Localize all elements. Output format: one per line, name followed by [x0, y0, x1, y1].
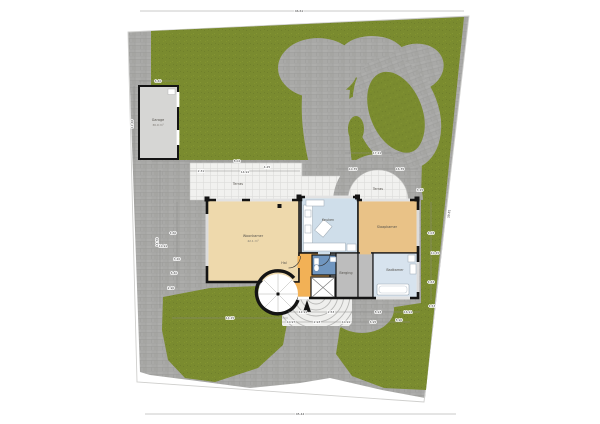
dimension-label: 8.93 — [375, 310, 382, 314]
room-label-badkamer: Badkamer — [386, 268, 404, 272]
dimension-label: 6.40 — [171, 271, 178, 275]
dimension-label: 8.90 — [396, 318, 403, 322]
dimension-label: 14.25 — [226, 316, 235, 320]
dimension-label: 2.31 — [198, 169, 205, 173]
dimension-label: 14.91 — [241, 170, 250, 174]
dimension-label: 8.02 — [234, 159, 241, 163]
floor-plan-svg: 46.6145.446.4011.4014.504.6010.913.206.4… — [0, 0, 600, 424]
room-label-keuken: Keuken — [322, 218, 334, 222]
room-label-woonkamer: Woonkamer — [243, 234, 264, 238]
garage-door-gap-bottom — [177, 130, 180, 145]
dimension-label: 10.91 — [159, 244, 168, 248]
dimension-label: 6.95 — [370, 320, 377, 324]
room-area-woonkamer: 42.1 m² — [247, 239, 258, 243]
dimension-label: 16.35 — [396, 167, 405, 171]
dimension-label: 39.81 — [447, 209, 452, 218]
dimension-label: 6.40 — [155, 79, 162, 83]
room-berging-b[interactable] — [358, 253, 373, 298]
room-label-slaapkamer: Slaapkamer — [377, 225, 398, 229]
dimension-label: 3.15 — [417, 188, 424, 192]
dimension-label: 16.91 — [404, 310, 413, 314]
dimension-label: 4.53 — [429, 304, 436, 308]
dimension-label: 4.63 — [428, 280, 435, 284]
room-label-terras-achter: Terras — [372, 187, 383, 191]
bathroom-sink — [410, 264, 416, 274]
dimension-label: 46.61 — [295, 9, 304, 13]
bathtub — [377, 284, 409, 295]
dimension-label: 4.03 — [428, 231, 435, 235]
room-label-garage: Garage — [152, 118, 164, 122]
bathroom-toilet — [408, 255, 415, 262]
room-berging-a[interactable] — [336, 253, 358, 298]
lawn-arch-hole — [348, 116, 364, 142]
dimension-label: 4.25 — [264, 165, 271, 169]
room-label-hal: Hal — [281, 261, 287, 265]
dimension-label: 17.21 — [373, 151, 382, 155]
dimension-label: 10.35 — [349, 167, 358, 171]
room-area-garage: 30.9 m² — [152, 123, 163, 127]
room-label-terras-voor: Terras — [232, 182, 243, 186]
spiral-staircase[interactable] — [256, 271, 298, 314]
site-plan-canvas: 46.6145.446.4011.4014.504.6010.913.206.4… — [0, 0, 600, 424]
dimension-label: 3.20 — [174, 257, 181, 261]
dimension-label: 2.93 — [314, 320, 321, 324]
dimension-label: 10.45 — [431, 251, 440, 255]
dimension-label: 4.60 — [170, 231, 177, 235]
garage-symbol-chip — [168, 89, 175, 95]
dimension-label: 11.40 — [130, 120, 134, 129]
dimension-label: 10.91 — [342, 320, 351, 324]
room-label-berging: Berging — [339, 271, 352, 275]
dimension-label: 10.97 — [287, 320, 296, 324]
dimension-label: 2.53 — [328, 310, 335, 314]
garage-door-gap-top — [177, 92, 180, 107]
dimension-label: 2.90 — [168, 286, 175, 290]
dimension-label: 45.44 — [296, 412, 305, 416]
dimension-label: 11.91 — [299, 310, 308, 314]
